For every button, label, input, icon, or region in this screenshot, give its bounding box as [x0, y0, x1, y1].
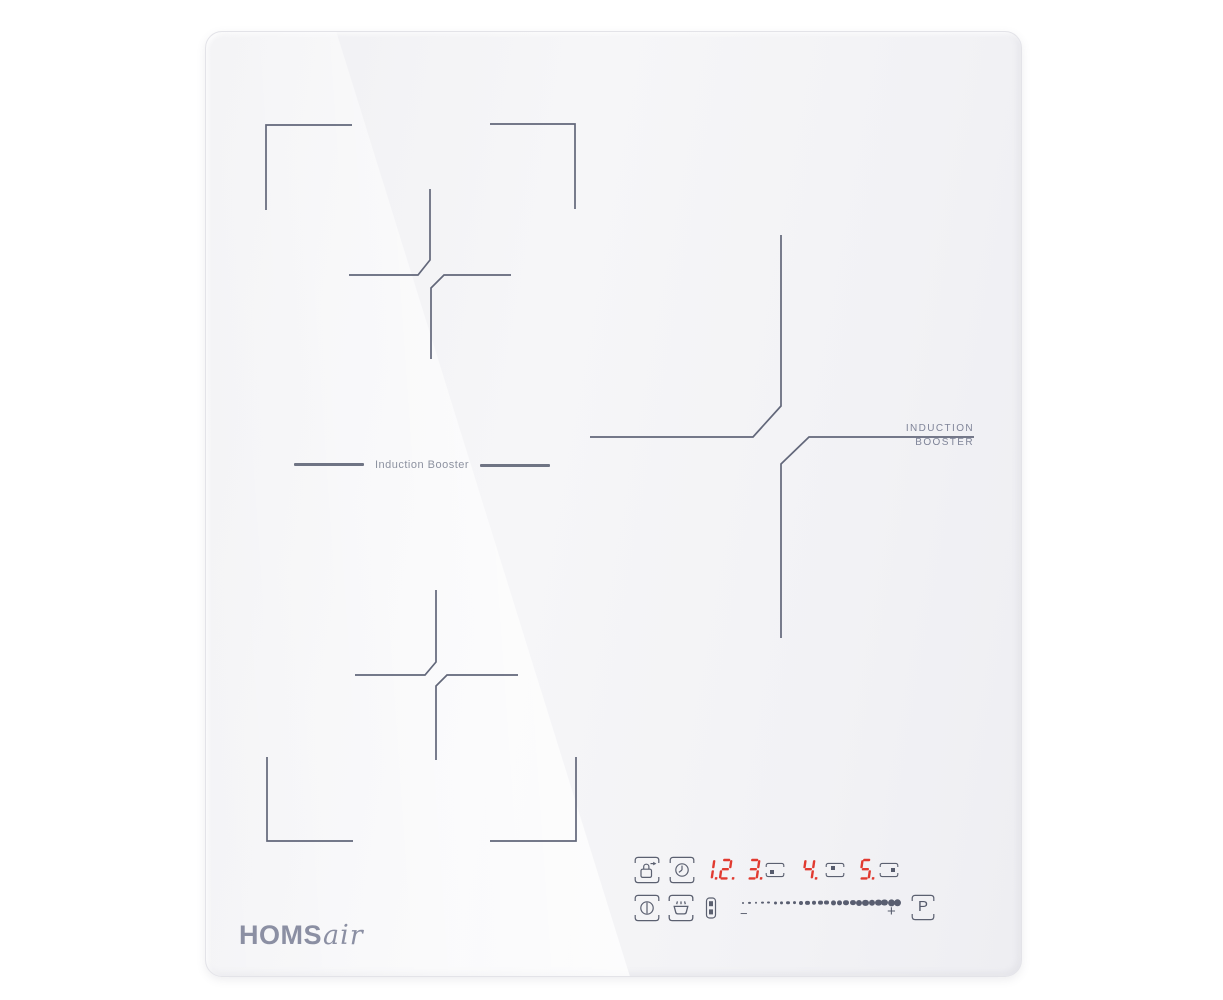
slider-plus-label: +	[887, 903, 896, 920]
product-photo: Induction Booster INDUCTION BOOSTER	[0, 0, 1223, 1000]
display-digit-zone4	[801, 858, 818, 881]
left-zone-booster-label: Induction Booster	[367, 459, 477, 471]
right-zone-booster-label-line2: BOOSTER	[886, 437, 974, 448]
booster-divider-right	[480, 464, 550, 467]
booster-p-label: P	[911, 898, 935, 915]
brand-logo-bold: HOMS	[239, 920, 322, 950]
cooking-zone-markings	[206, 32, 1021, 976]
timer-icon	[669, 856, 695, 884]
booster-p-key: P	[911, 894, 935, 921]
display-digit-zone12-right	[718, 858, 735, 881]
induction-hob-glass: Induction Booster INDUCTION BOOSTER	[205, 31, 1022, 977]
zone-position-indicator	[765, 862, 785, 878]
booster-divider-left	[294, 463, 364, 466]
child-lock-icon	[634, 856, 660, 884]
display-digit-zone3	[746, 858, 763, 881]
display-digit-zone5	[858, 858, 875, 881]
brand-logo-script: air	[323, 920, 364, 951]
bridge-zone-icon	[701, 894, 721, 922]
right-zone-booster-label-line1: INDUCTION	[886, 423, 974, 434]
power-slider-dots	[740, 896, 906, 909]
brand-logo: HOMSair	[239, 920, 364, 951]
display-digit-zone12-left	[701, 858, 718, 881]
zone-position-indicator	[879, 862, 899, 878]
zone-position-indicator	[825, 862, 845, 878]
keep-warm-icon	[668, 894, 694, 922]
power-icon	[634, 894, 660, 922]
slider-minus-label: −	[740, 906, 748, 921]
